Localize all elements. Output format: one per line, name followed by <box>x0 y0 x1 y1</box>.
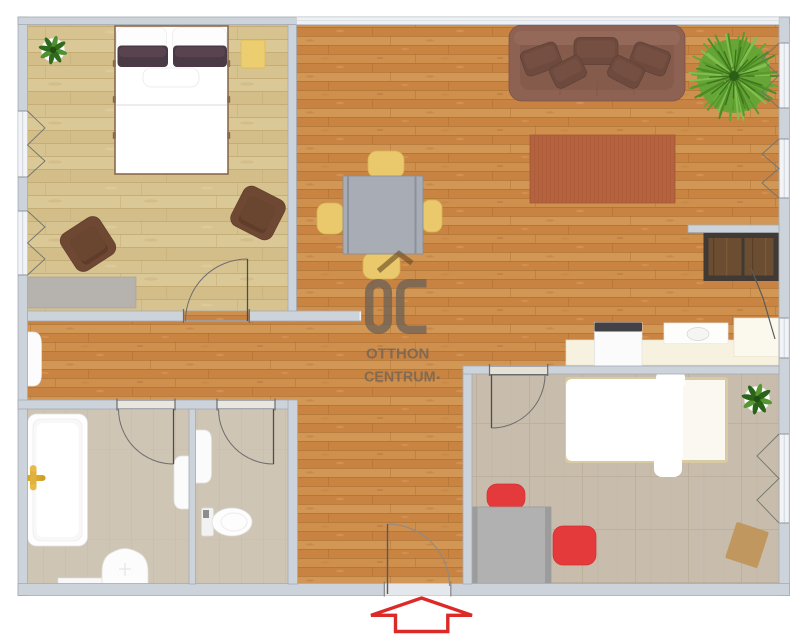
svg-text:CENTRUM: CENTRUM <box>364 370 435 386</box>
svg-text:OTTHON: OTTHON <box>366 346 429 363</box>
